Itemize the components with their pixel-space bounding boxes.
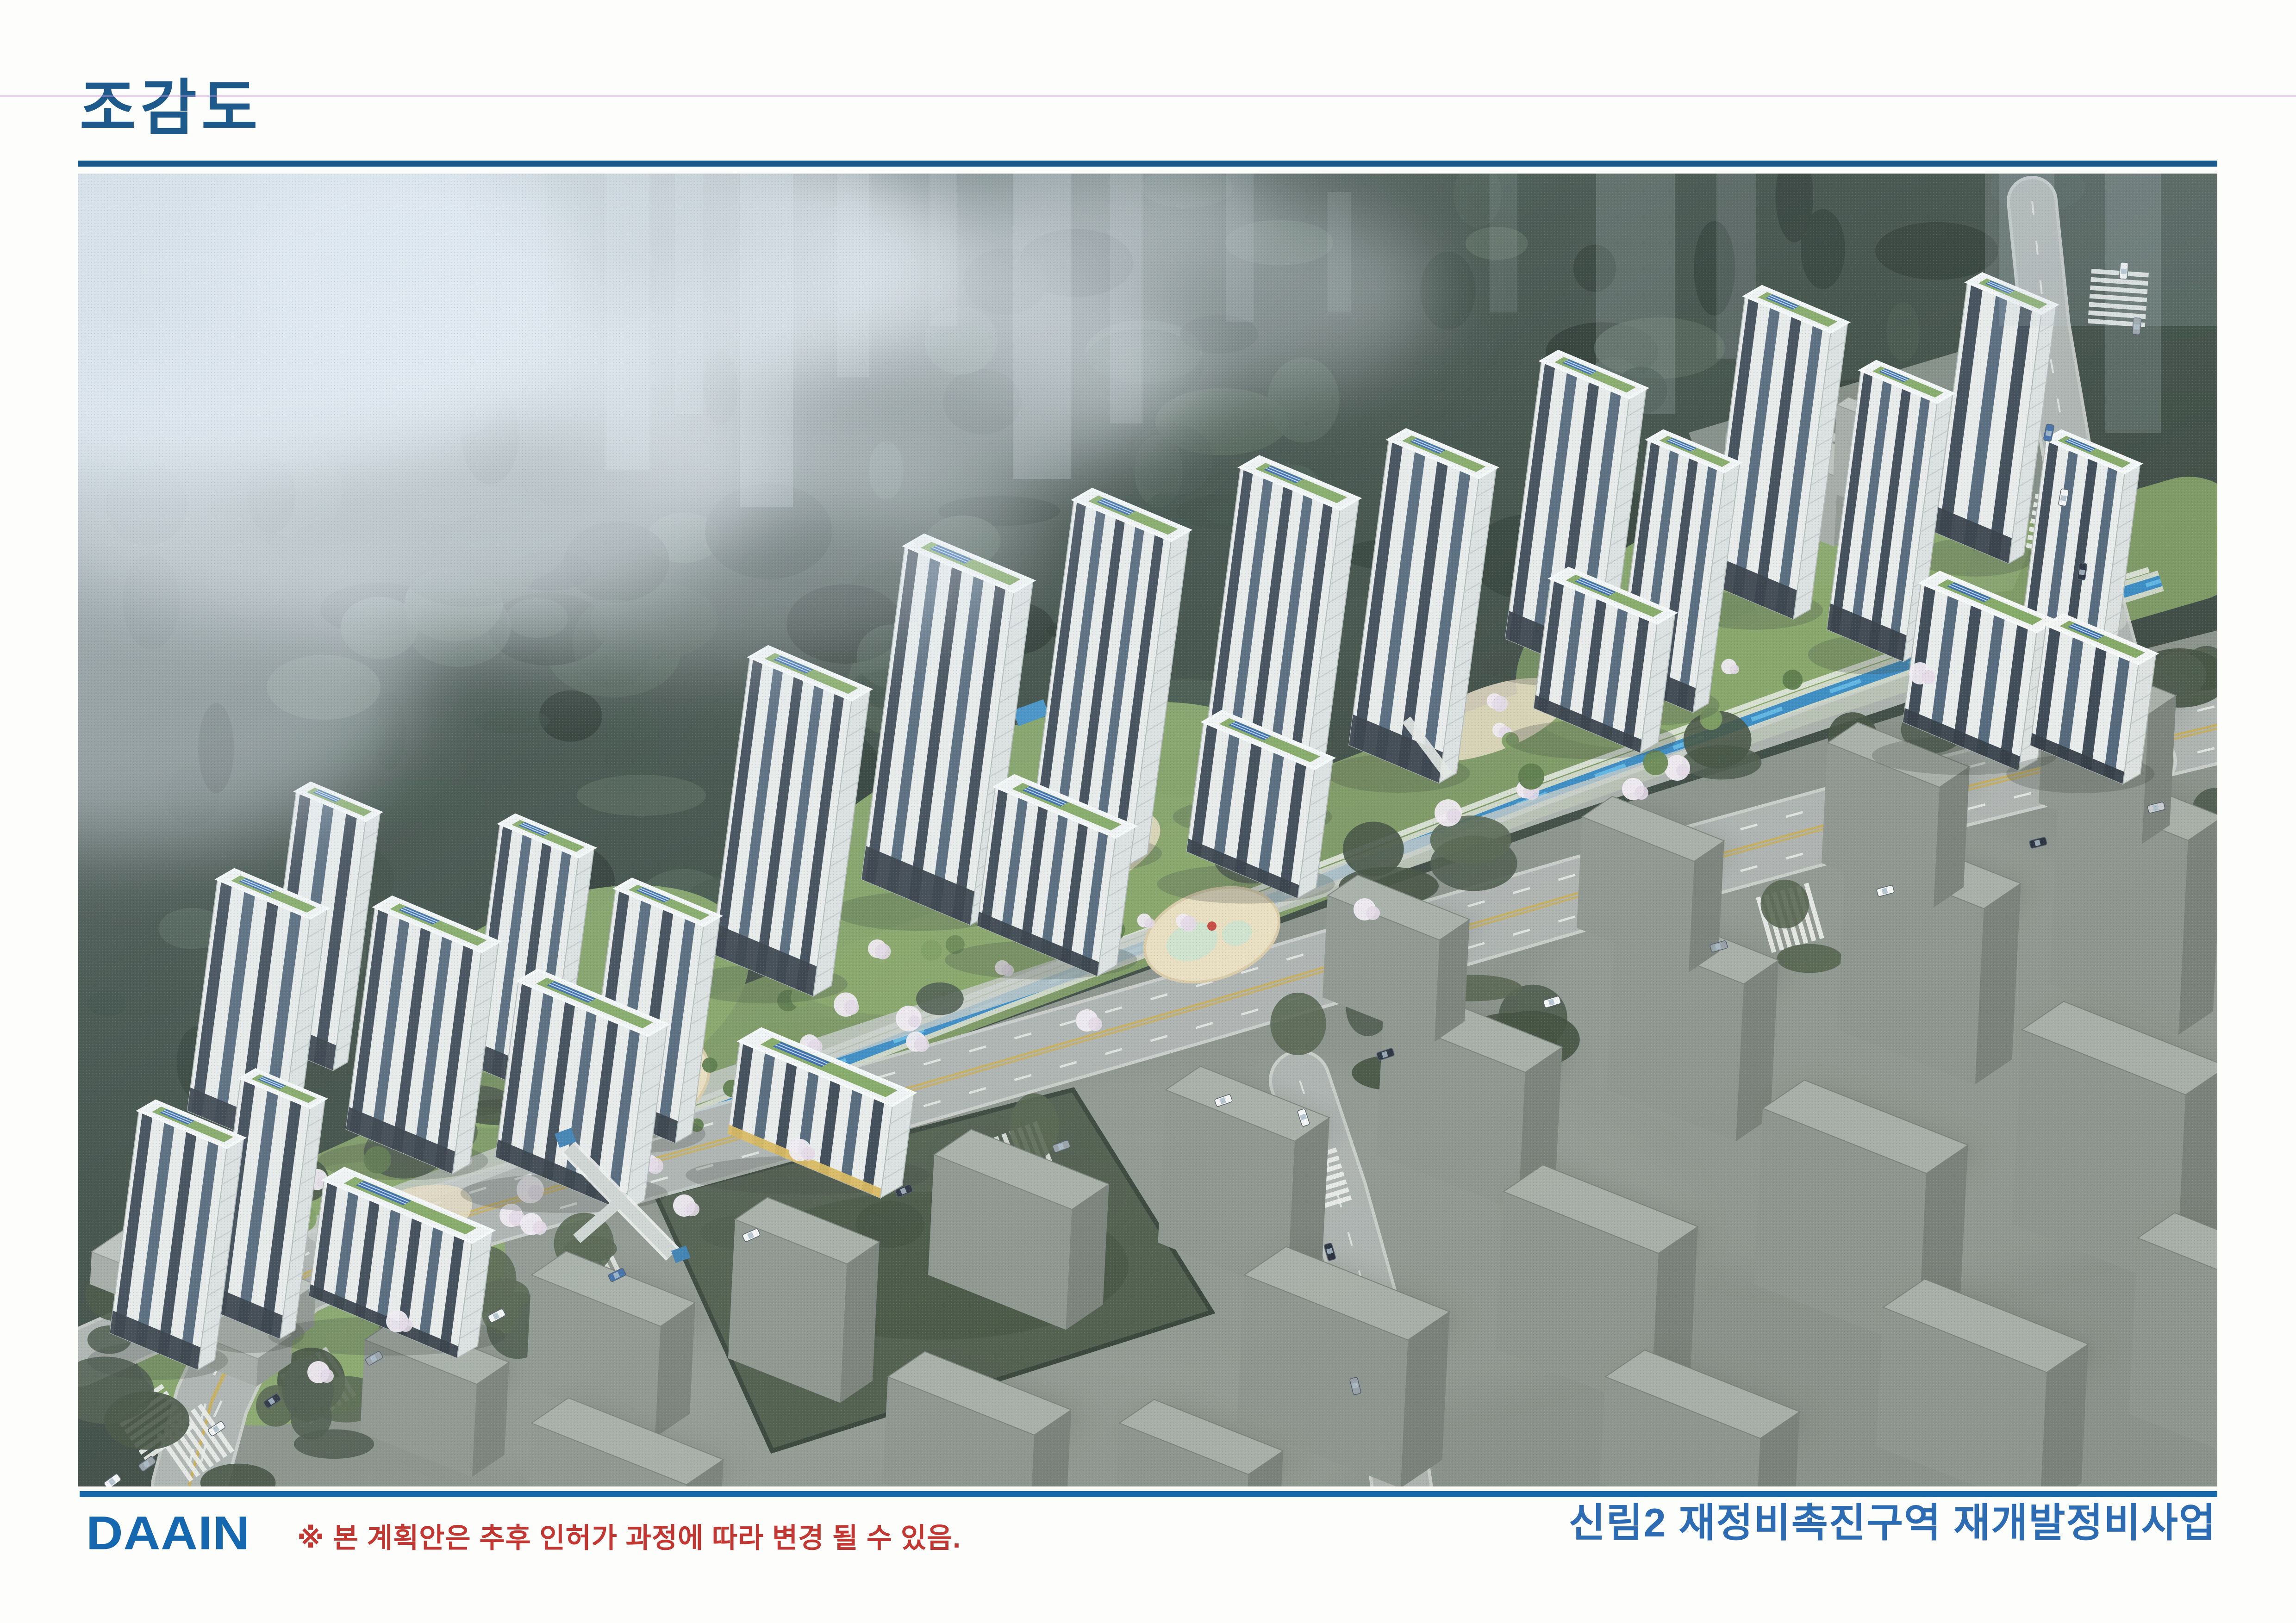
aerial-rendering: [78, 174, 2217, 1486]
project-name: 신림2 재정비촉진구역 재개발정비사업: [1568, 1503, 2216, 1543]
aerial-rendering-canvas: [78, 174, 2217, 1486]
company-logo: DAAIN: [86, 1510, 250, 1557]
disclaimer-note: ※ 본 계획안은 추후 인허가 과정에 따라 변경 될 수 있음.: [297, 1524, 961, 1552]
title-underline-rule: [78, 161, 2217, 167]
scan-artifact-line: [0, 95, 2296, 97]
footer-rule: [80, 1491, 2217, 1497]
page-title: 조감도: [80, 78, 262, 139]
